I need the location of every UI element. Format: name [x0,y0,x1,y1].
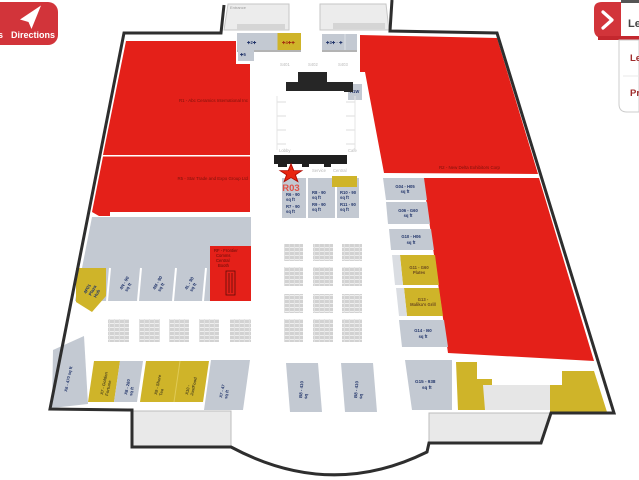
svg-text:Central: Central [333,168,347,173]
svg-text:Lobby: Lobby [279,148,291,153]
svg-text:✚4✚✚: ✚4✚✚ [282,40,295,45]
svg-text:R5 - Star Trade and Expo Group: R5 - Star Trade and Expo Group Ltd [177,176,248,181]
svg-text:R03: R03 [282,183,299,194]
svg-text:Booth: Booth [218,263,230,268]
svg-text:sq ft: sq ft [312,195,321,200]
svg-text:Cafe: Cafe [348,148,358,153]
svg-text:G10 - H06: G10 - H06 [401,234,421,239]
svg-text:Pr: Pr [630,88,639,99]
svg-text:sq: sq [358,393,363,399]
svg-text:sq ft: sq ft [401,189,410,194]
svg-text:S403: S403 [338,62,348,67]
svg-text:S401: S401 [280,62,290,67]
svg-text:✚5: ✚5 [240,52,247,57]
svg-text:Entrance: Entrance [230,5,247,10]
svg-text:S402: S402 [308,62,318,67]
svg-text:sq ft: sq ft [340,207,349,212]
svg-text:sq: sq [303,393,308,399]
svg-text:Le: Le [628,18,639,30]
svg-text:s: s [0,30,3,40]
svg-text:R2 - New Delta Exhibitors Corp: R2 - New Delta Exhibitors Corp [439,165,501,170]
svg-text:sq ft: sq ft [286,209,295,214]
svg-text:sq ft: sq ft [422,385,432,390]
svg-text:sq ft: sq ft [404,213,413,218]
svg-text:sq ft: sq ft [419,334,428,339]
svg-text:sq ft: sq ft [407,240,416,245]
svg-text:Plates: Plates [413,270,426,275]
svg-text:Malika's Grill: Malika's Grill [410,302,436,307]
svg-text:sq ft: sq ft [340,195,349,200]
svg-text:Directions: Directions [11,30,55,40]
svg-text:✚2✚: ✚2✚ [247,40,257,45]
svg-text:Service: Service [312,168,327,173]
svg-text:G14 - I60: G14 - I60 [414,328,432,333]
svg-text:Le: Le [630,53,639,64]
svg-text:✚3✚ · ✚: ✚3✚ · ✚ [326,40,343,45]
svg-text:sq ft: sq ft [312,207,321,212]
svg-text:R1 - Abc Ceramics Internationa: R1 - Abc Ceramics International Inc [179,98,249,103]
svg-text:sq ft: sq ft [286,197,295,202]
svg-text:G15 - 938: G15 - 938 [415,379,436,384]
